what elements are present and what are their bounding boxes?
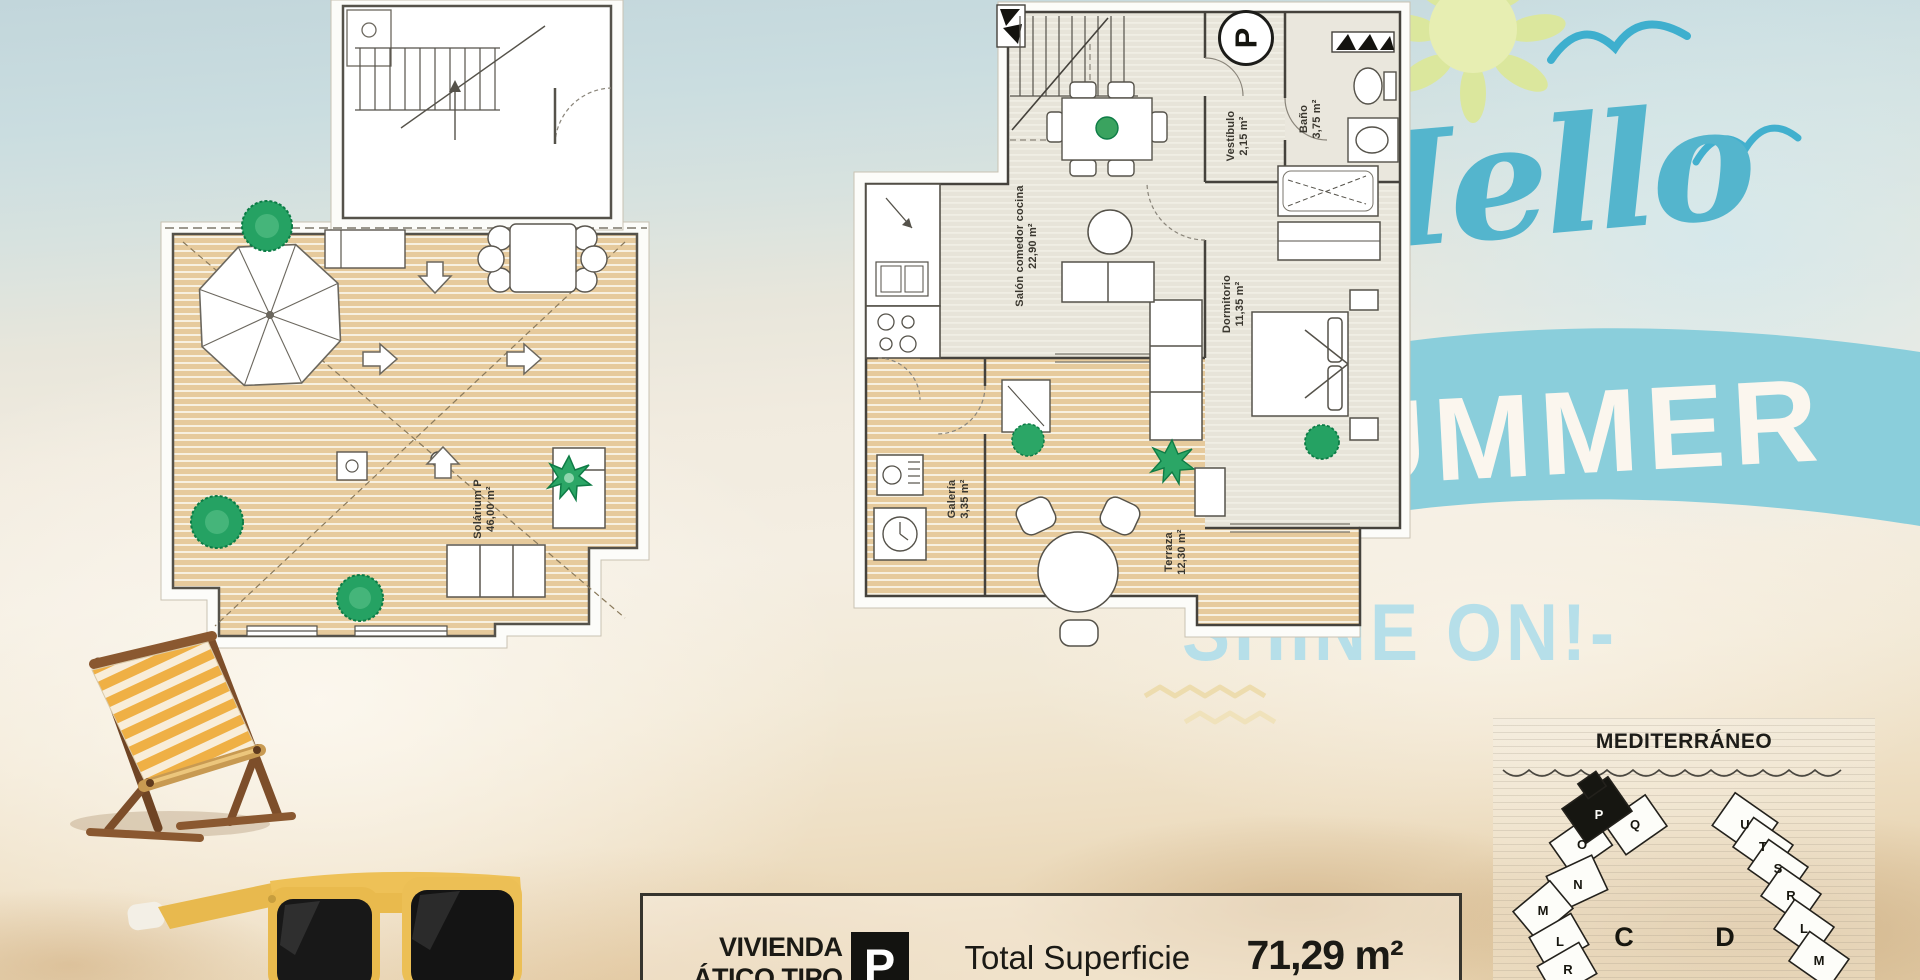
seagull-icon bbox=[1545, 2, 1695, 74]
unit-label: M bbox=[1814, 953, 1825, 968]
wardrobe bbox=[1278, 222, 1380, 260]
type-badge: P bbox=[851, 932, 909, 980]
room-label-vestibulo: Vestíbulo 2,15 m² bbox=[1225, 81, 1251, 191]
outdoor-table-set bbox=[478, 224, 607, 292]
unit-label: S bbox=[1774, 861, 1783, 876]
unit-label: T bbox=[1759, 839, 1767, 854]
stair-room bbox=[343, 6, 611, 218]
unit-label: U bbox=[1740, 817, 1749, 832]
washing-machine bbox=[877, 455, 923, 495]
table-plant bbox=[1096, 117, 1118, 139]
unit-label: M bbox=[1538, 903, 1549, 918]
zigzag-decoration bbox=[1140, 682, 1350, 742]
room-label-salon: Salón comedor cocina 22,90 m² bbox=[1014, 166, 1040, 326]
room-label-dormitorio: Dormitorio 11,35 m² bbox=[1221, 239, 1247, 369]
beach-chair-photo bbox=[60, 620, 300, 840]
site-plan: MEDITERRÁNEO bbox=[1493, 718, 1875, 980]
dwelling-title: VIVIENDA ÁTICO TIPO bbox=[693, 932, 843, 980]
area-summary: Total Superficie 71,29 m² Superficie Sol… bbox=[965, 932, 1403, 980]
plan-type-badge: P bbox=[1218, 10, 1274, 66]
room-label-terraza: Terraza 12,30 m² bbox=[1163, 492, 1189, 612]
unit-label: L bbox=[1556, 934, 1564, 949]
unit-label: O bbox=[1577, 837, 1587, 852]
room-label-bano: Baño 3,75 m² bbox=[1298, 69, 1324, 169]
unit-label: P bbox=[1595, 807, 1604, 822]
bathroom-sink bbox=[1348, 118, 1398, 162]
dwelling-title-line2: ÁTICO TIPO bbox=[693, 963, 843, 980]
unit-label: L bbox=[1800, 921, 1808, 936]
unit-label: N bbox=[1573, 877, 1582, 892]
unit-label: Q bbox=[1630, 817, 1640, 832]
toilet bbox=[1354, 68, 1396, 104]
coffee-table bbox=[1088, 210, 1132, 254]
total-area-value: 71,29 m² bbox=[1247, 932, 1403, 979]
kitchen bbox=[866, 184, 940, 358]
sun-lounger bbox=[325, 230, 405, 268]
bathtub bbox=[1278, 166, 1378, 216]
solarium-floor-plan bbox=[155, 0, 655, 650]
apartment-floor-plan bbox=[850, 0, 1420, 650]
site-plan-map: P Q O N M L R U T S R L M C D bbox=[1493, 718, 1875, 980]
total-area-row: Total Superficie 71,29 m² bbox=[965, 932, 1403, 979]
unit-label: R bbox=[1563, 962, 1573, 977]
brochure-page: Hello SUMMER SHINE ON!- MEDITERRÁNEO bbox=[0, 0, 1920, 980]
water-wave-line bbox=[1503, 770, 1841, 776]
water-heater bbox=[874, 508, 926, 560]
room-label-solarium: Solárium P 46,00 m² bbox=[472, 434, 498, 584]
sunglasses-photo bbox=[120, 865, 530, 980]
dwelling-title-line1: VIVIENDA bbox=[693, 932, 843, 963]
total-area-label: Total Superficie bbox=[965, 939, 1235, 977]
block-d-label: D bbox=[1715, 922, 1735, 952]
unit-label: R bbox=[1786, 888, 1796, 903]
building-c bbox=[1513, 771, 1667, 980]
block-c-label: C bbox=[1614, 922, 1634, 952]
room-label-galeria: Galería 3,35 m² bbox=[946, 444, 972, 554]
info-box: VIVIENDA ÁTICO TIPO P Total Superficie 7… bbox=[640, 893, 1462, 980]
